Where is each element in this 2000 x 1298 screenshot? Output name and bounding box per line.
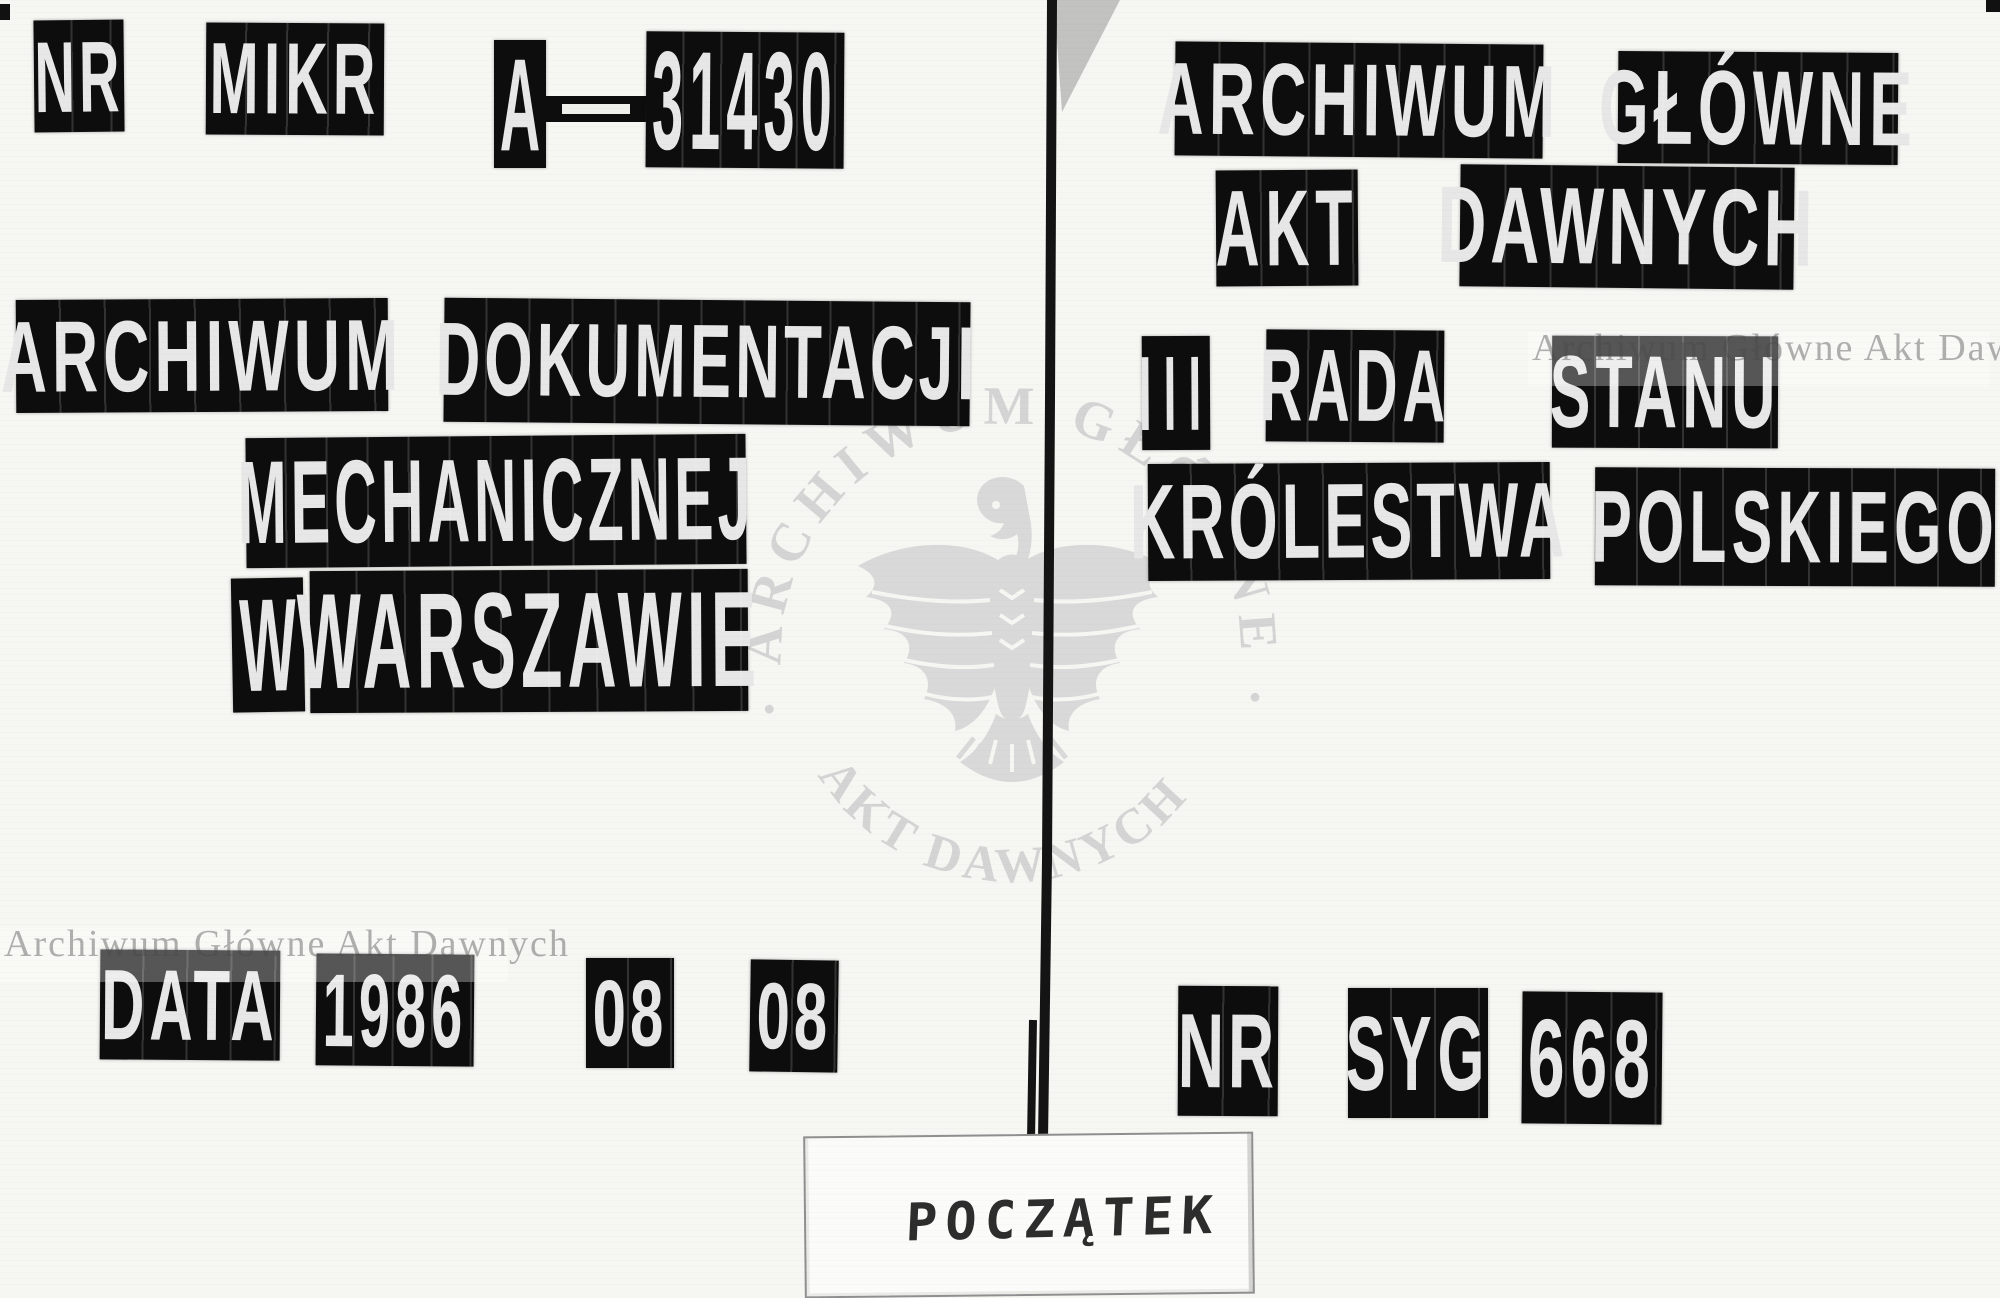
edge-artifact-right (1986, 0, 2000, 12)
label-tile-w: W (231, 577, 305, 712)
edge-artifact-left (0, 4, 10, 20)
label-tile-stanu: STANU (1552, 336, 1778, 449)
label-tile-sig-number: 668 (1521, 991, 1662, 1124)
divider-line-secondary (1031, 1020, 1033, 1140)
label-tile-warszawie: WARSZAWIE (310, 569, 749, 713)
label-tile-month: 08 (586, 958, 674, 1068)
label-tile-dokumentacji: DOKUMENTACJI (443, 298, 970, 427)
label-tile-archiwum-left: ARCHIWUM (16, 298, 389, 413)
divider-top-shadow-wedge (1054, 0, 1120, 112)
label-tile-rada: RADA (1266, 329, 1445, 442)
slip-handwritten-text: POCZĄTEK (905, 1186, 1222, 1254)
label-tile-syg: SYG (1348, 988, 1488, 1118)
label-tile-glowne: GŁÓWNE (1618, 51, 1899, 165)
label-tile-dawnych: DAWNYCH (1459, 164, 1794, 289)
label-tile-film-number: 31430 (646, 31, 845, 168)
label-tile-krolestwa: KRÓLESTWA (1148, 462, 1551, 581)
label-tile-year: 1986 (316, 953, 475, 1066)
poczatek-slip: POCZĄTEK (803, 1132, 1255, 1298)
label-tile-data: DATA (100, 949, 281, 1060)
label-tile-nr: NR (33, 20, 124, 133)
label-tile-akt: AKT (1216, 170, 1359, 287)
label-tile-mechanicznej: MECHANICZNEJ (245, 434, 746, 568)
label-tile-iii: III (1142, 336, 1211, 450)
label-tile-archiwum-right: ARCHIWUM (1175, 41, 1544, 158)
divider-line (1043, 0, 1052, 1140)
label-tile-film-prefix: A (494, 40, 546, 168)
label-tile-mikr: MIKR (206, 23, 385, 136)
microfilm-target-card-scan: · ARCHIWUM GŁÓWNE · AKT DAWNYCH (0, 0, 2000, 1287)
label-tile-day: 08 (749, 959, 839, 1072)
film-number-dash (546, 96, 648, 122)
label-tile-polskiego: POLSKIEGO (1595, 467, 1995, 586)
label-tile-nr-sig: NR (1178, 986, 1279, 1117)
